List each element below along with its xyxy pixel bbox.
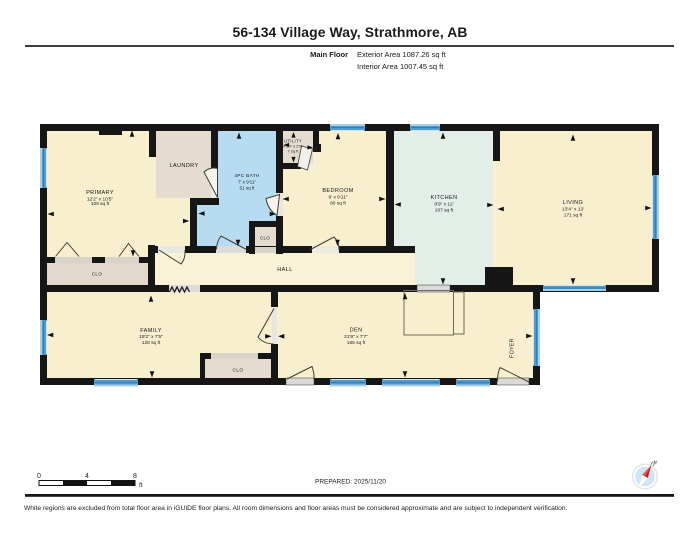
svg-text:13'4" x 13': 13'4" x 13' [562, 207, 584, 213]
svg-text:PREPARED: 2025/11/20: PREPARED: 2025/11/20 [315, 479, 386, 486]
svg-text:Interior Area 1007.45 sq ft: Interior Area 1007.45 sq ft [357, 62, 444, 71]
svg-text:DEN: DEN [350, 328, 363, 334]
svg-text:0: 0 [37, 473, 41, 480]
svg-text:LAUNDRY: LAUNDRY [169, 163, 198, 169]
svg-text:56-134 Village Way, Strathmore: 56-134 Village Way, Strathmore, AB [233, 24, 468, 40]
svg-text:8: 8 [133, 473, 137, 480]
svg-text:9' x 9'11": 9' x 9'11" [329, 195, 348, 201]
svg-text:CLO: CLO [92, 272, 103, 277]
svg-text:BEDROOM: BEDROOM [322, 188, 353, 194]
svg-text:PRIMARY: PRIMARY [86, 190, 114, 196]
svg-text:80 sq ft: 80 sq ft [330, 201, 346, 207]
svg-text:165 sq ft: 165 sq ft [347, 340, 366, 346]
svg-text:White regions are excluded fro: White regions are excluded from total fl… [24, 505, 568, 512]
svg-text:4PC BATH: 4PC BATH [234, 173, 259, 178]
svg-text:FAMILY: FAMILY [140, 328, 162, 334]
svg-text:ft: ft [139, 482, 143, 489]
svg-text:8'9" x 12': 8'9" x 12' [434, 202, 453, 208]
svg-text:4: 4 [85, 473, 89, 480]
svg-text:128 sq ft: 128 sq ft [142, 340, 161, 346]
svg-text:107 sq ft: 107 sq ft [435, 208, 454, 214]
svg-text:Main Floor: Main Floor [310, 50, 348, 59]
svg-text:LIVING: LIVING [563, 200, 583, 206]
svg-text:21'9" x 7'7": 21'9" x 7'7" [344, 334, 368, 340]
svg-text:19'2" x 7'5": 19'2" x 7'5" [139, 334, 163, 340]
svg-text:7' x 9'11": 7' x 9'11" [238, 180, 256, 185]
svg-text:CLO: CLO [233, 368, 244, 374]
svg-text:109 sq ft: 109 sq ft [91, 201, 110, 207]
svg-text:171 sq ft: 171 sq ft [564, 213, 583, 219]
svg-text:7 sq ft: 7 sq ft [288, 149, 300, 154]
svg-text:CLO: CLO [260, 236, 270, 241]
svg-text:FOYER: FOYER [510, 338, 516, 358]
svg-text:Exterior Area 1087.26 sq ft: Exterior Area 1087.26 sq ft [357, 50, 447, 59]
svg-text:KITCHEN: KITCHEN [430, 195, 457, 201]
svg-text:51 sq ft: 51 sq ft [239, 186, 255, 191]
svg-text:HALL: HALL [277, 267, 292, 273]
